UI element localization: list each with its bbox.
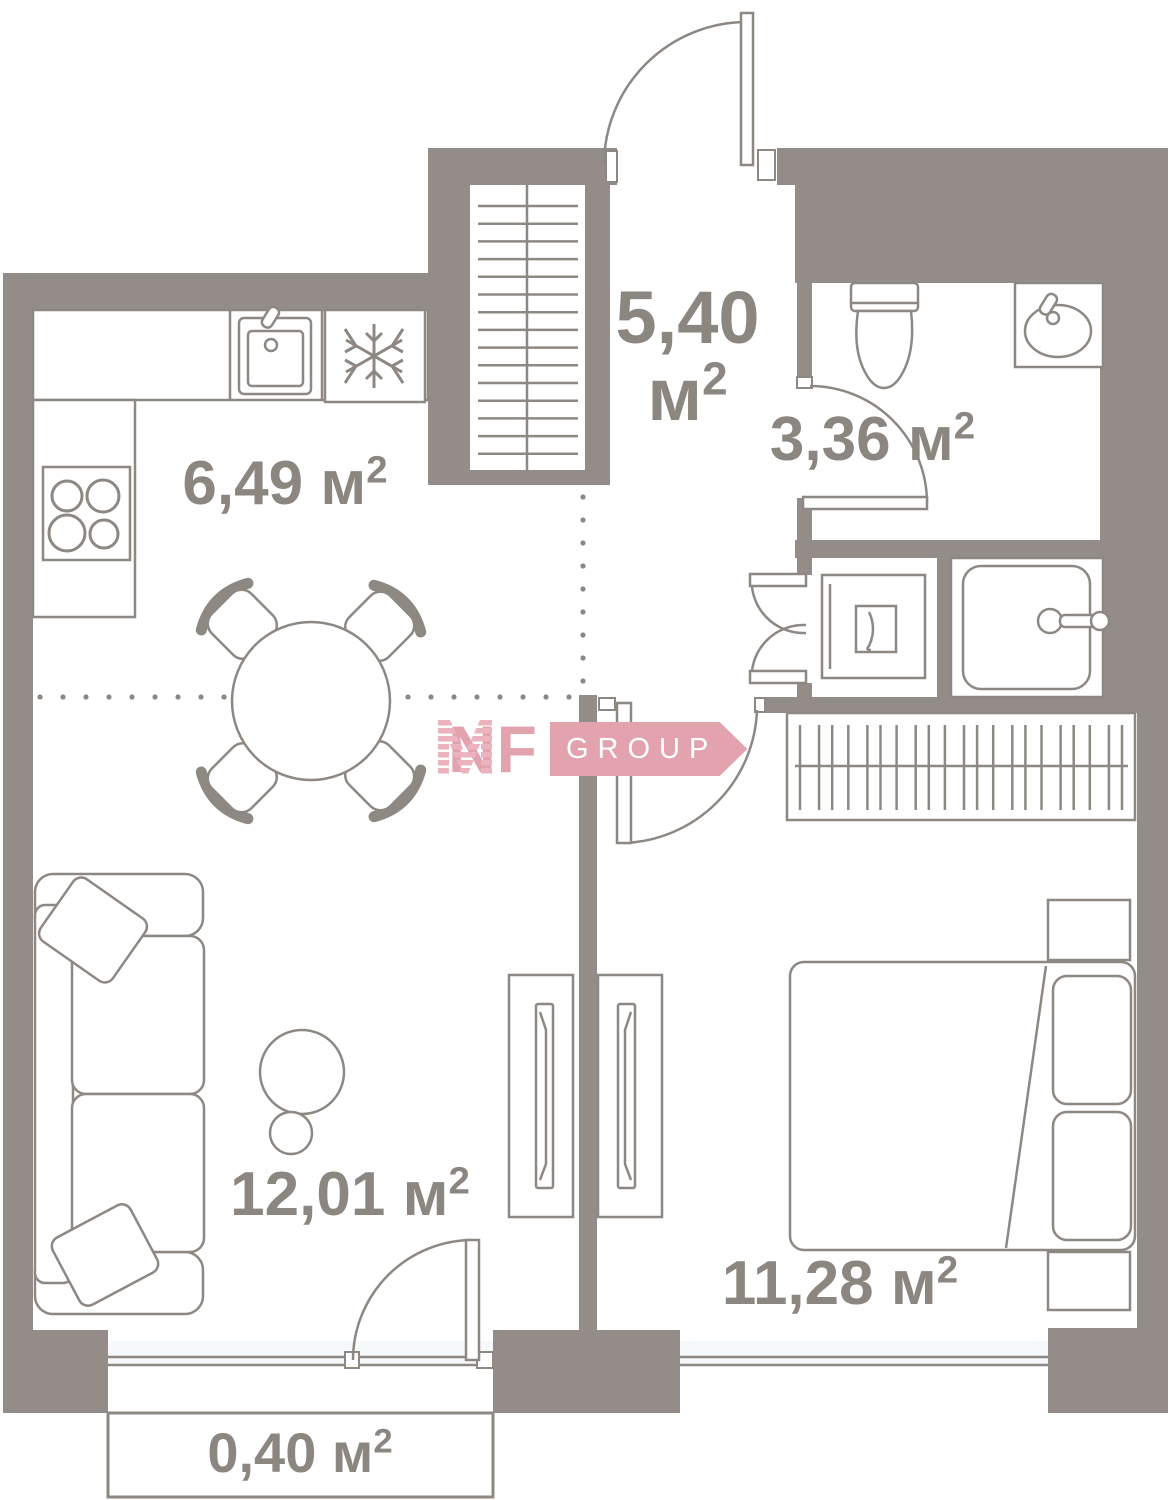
nightstand — [1048, 900, 1130, 960]
tv-console-bedroom — [598, 975, 662, 1217]
floor-plan: NF GROUP 6,49 м2 5,40 м2 3,36 м2 12,01 м… — [0, 0, 1173, 1500]
bed — [790, 962, 1135, 1250]
dining-table — [232, 622, 390, 780]
bedroom-area-label: 11,28 м2 — [690, 1252, 990, 1316]
balcony-area-label: 0,40 м2 — [150, 1424, 450, 1482]
entry-door — [604, 13, 775, 182]
door-leaf — [750, 574, 806, 586]
wash-basin-icon — [1015, 283, 1103, 367]
zone-boundary-dotted-vertical — [580, 494, 585, 683]
stove-hob-icon — [43, 467, 130, 560]
door-swing-arc — [604, 22, 747, 165]
shower-tray-icon — [951, 558, 1109, 697]
dining-set — [195, 577, 428, 826]
nightstand — [1048, 1252, 1130, 1310]
bathroom-area-label: 3,36 м2 — [740, 408, 1005, 472]
door-leaf — [466, 1240, 479, 1360]
toilet-icon — [851, 283, 918, 388]
kitchen-sink-icon — [239, 305, 311, 394]
logo-group-text: GROUP — [566, 733, 717, 766]
laundry-double-door — [750, 574, 806, 683]
living-area-label: 12,01 м2 — [200, 1163, 500, 1227]
washing-machine-icon — [822, 575, 925, 678]
fridge-snowflake-icon — [325, 310, 425, 402]
tv-icon — [536, 1004, 553, 1188]
kitchen-area-label: 6,49 м2 — [140, 452, 430, 516]
tv-console-living — [509, 975, 573, 1217]
door-leaf — [803, 497, 927, 509]
bedroom-window — [680, 1328, 1048, 1413]
tv-icon — [618, 1004, 635, 1188]
floor-lamp-icon — [260, 1030, 344, 1154]
door-leaf — [750, 671, 806, 683]
logo-group-banner: GROUP — [550, 722, 747, 776]
living-window — [108, 1330, 493, 1413]
door-leaf — [741, 13, 753, 165]
pillow — [1053, 1112, 1131, 1240]
sofa — [35, 874, 204, 1314]
nf-group-logo: NF GROUP — [438, 720, 747, 778]
pillow — [1053, 976, 1131, 1104]
stairs — [470, 185, 585, 470]
wardrobe — [787, 713, 1135, 820]
logo-m-mark-icon — [438, 720, 492, 774]
